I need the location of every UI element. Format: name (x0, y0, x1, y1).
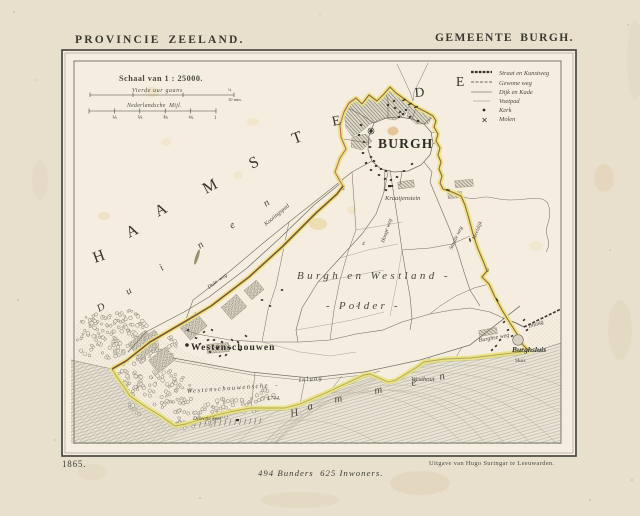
svg-text:Voetpad: Voetpad (499, 98, 520, 105)
svg-text:D: D (414, 84, 425, 100)
svg-text:Westenschouwen: Westenschouwen (191, 343, 276, 353)
svg-text:Kerk: Kerk (498, 107, 512, 114)
svg-text:1865.: 1865. (62, 459, 86, 469)
svg-text:⅖: ⅖ (138, 115, 143, 121)
svg-text:1744.: 1744. (267, 395, 281, 402)
svg-text:Molen: Molen (498, 116, 515, 123)
svg-text:494 Bunders 625 Inwoners.: 494 Bunders 625 Inwoners. (258, 468, 383, 478)
svg-text:BURGH: BURGH (378, 136, 434, 151)
svg-text:Vierde uur gaans: Vierde uur gaans (132, 88, 183, 94)
svg-text:Burghsluis: Burghsluis (511, 345, 546, 354)
svg-text:Straat en Kunstweg: Straat en Kunstweg (499, 70, 550, 77)
svg-text:10 min.: 10 min. (228, 97, 242, 102)
svg-text:Nederlandsche Mijl.: Nederlandsche Mijl. (126, 103, 182, 109)
svg-text:Kraaijenstein: Kraaijenstein (384, 195, 420, 202)
svg-text:⅘: ⅘ (189, 115, 194, 121)
svg-text:Westhout: Westhout (411, 376, 435, 383)
svg-text:Schaal van 1 : 25000.: Schaal van 1 : 25000. (119, 74, 203, 83)
svg-text:Uitgave van Hugo Suringar te L: Uitgave van Hugo Suringar te Leeuwarden. (429, 460, 554, 467)
svg-text:GEMEENTE BURGH.: GEMEENTE BURGH. (435, 32, 574, 44)
svg-text:5: 5 (342, 186, 345, 192)
svg-text:⅕: ⅕ (112, 115, 117, 121)
svg-text:Directie keet: Directie keet (192, 416, 222, 422)
svg-text:Sluis: Sluis (515, 358, 526, 364)
svg-text:⅗: ⅗ (163, 115, 168, 121)
svg-text:3: 3 (485, 268, 489, 274)
svg-text:E: E (456, 74, 464, 89)
svg-text:Dijk en Kade: Dijk en Kade (498, 89, 533, 96)
svg-text:2: 2 (356, 303, 359, 309)
svg-text:Gewone weg: Gewone weg (499, 80, 533, 87)
svg-text:- Polder -: - Polder - (326, 300, 401, 312)
svg-text:4: 4 (362, 240, 365, 247)
svg-text:Burgh en Westland -: Burgh en Westland - (297, 270, 451, 282)
svg-text:PROVINCIE ZEELAND.: PROVINCIE ZEELAND. (75, 34, 245, 46)
